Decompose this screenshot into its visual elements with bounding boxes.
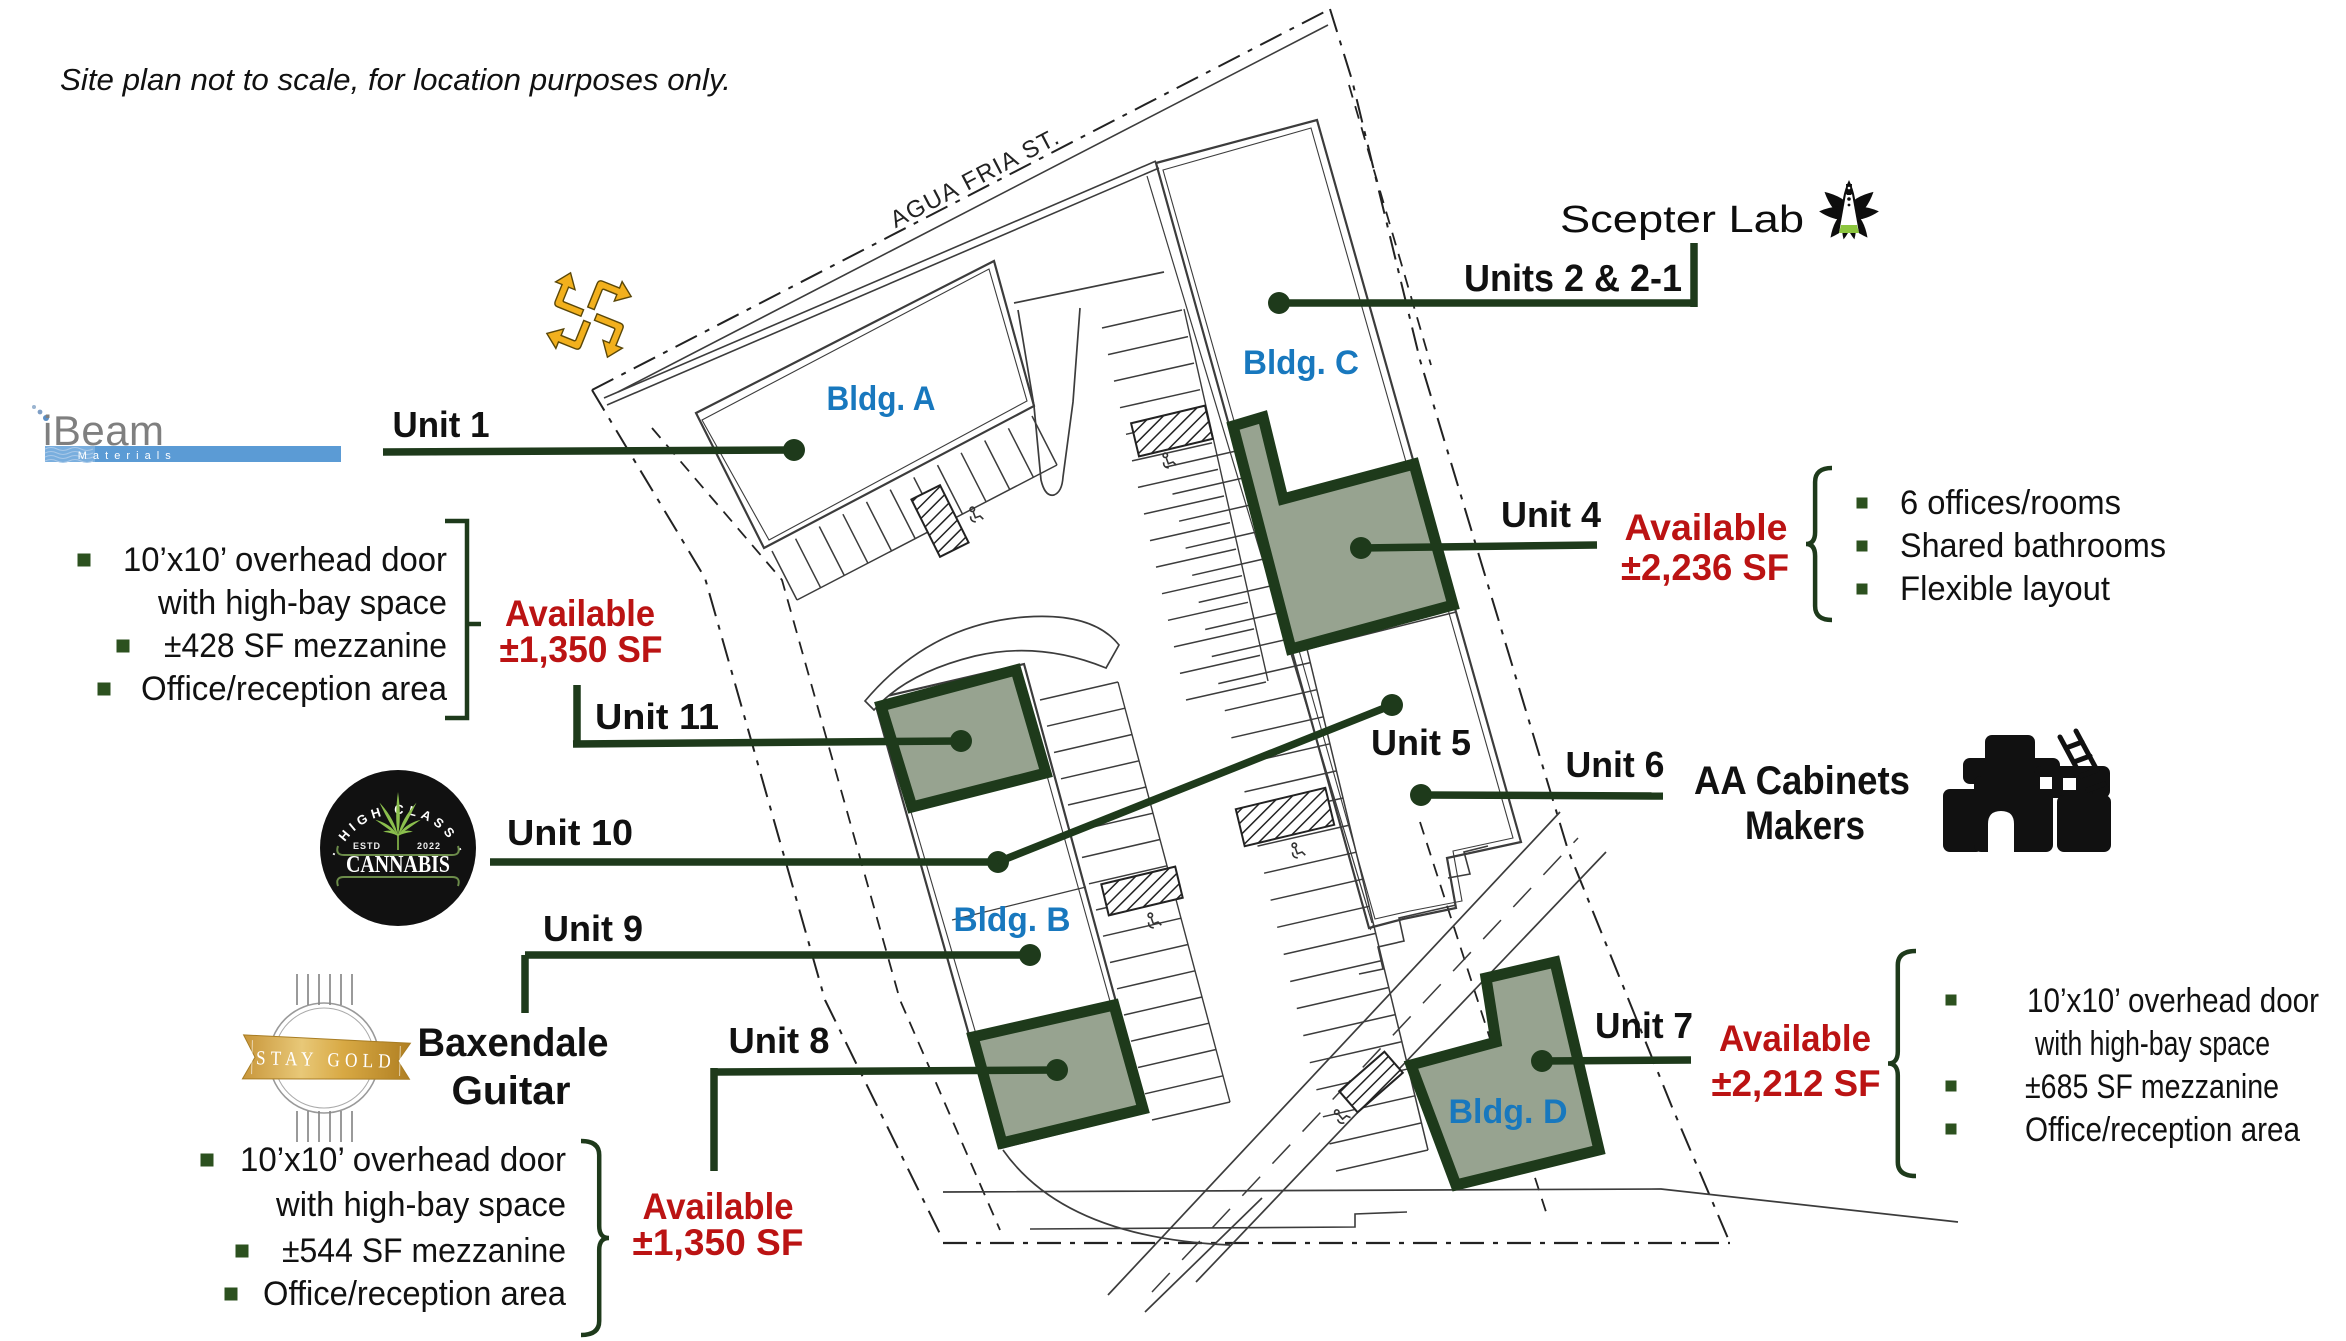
svg-text:Site plan not to scale, for lo: Site plan not to scale, for location pur… <box>60 62 731 97</box>
svg-text:±1,350 SF: ±1,350 SF <box>633 1222 804 1263</box>
svg-text:Available: Available <box>1625 507 1788 548</box>
svg-text:Available: Available <box>505 593 655 634</box>
svg-text:6 offices/rooms: 6 offices/rooms <box>1900 484 2121 522</box>
svg-text:Unit 7: Unit 7 <box>1595 1005 1693 1046</box>
svg-text:±685 SF mezzanine: ±685 SF mezzanine <box>2025 1068 2279 1106</box>
svg-text:±1,350 SF: ±1,350 SF <box>500 629 663 670</box>
svg-text:Scepter Lab: Scepter Lab <box>1560 199 1804 241</box>
svg-text:Unit 11: Unit 11 <box>595 696 719 737</box>
svg-text:Unit 8: Unit 8 <box>729 1020 830 1061</box>
svg-text:with high-bay space: with high-bay space <box>2034 1025 2270 1063</box>
svg-text:10’x10’ overhead door: 10’x10’ overhead door <box>123 541 447 579</box>
svg-text:CANNABIS: CANNABIS <box>346 852 450 878</box>
svg-text:±428 SF mezzanine: ±428 SF mezzanine <box>164 627 447 665</box>
svg-text:Unit 5: Unit 5 <box>1371 722 1471 763</box>
svg-text:±544 SF mezzanine: ±544 SF mezzanine <box>282 1232 566 1270</box>
svg-text:Guitar: Guitar <box>452 1069 571 1113</box>
svg-text:STAY GOLD: STAY GOLD <box>256 1047 397 1073</box>
svg-text:Unit 1: Unit 1 <box>393 404 490 445</box>
svg-text:Available: Available <box>1719 1018 1871 1059</box>
svg-text:Unit 4: Unit 4 <box>1501 494 1601 535</box>
svg-text:Office/reception area: Office/reception area <box>141 670 447 708</box>
svg-text:Bldg. A: Bldg. A <box>827 380 936 418</box>
svg-text:±2,236 SF: ±2,236 SF <box>1621 547 1789 588</box>
svg-text:AA Cabinets: AA Cabinets <box>1694 759 1910 803</box>
svg-text:2022: 2022 <box>417 841 441 851</box>
svg-text:Office/reception area: Office/reception area <box>263 1275 566 1313</box>
svg-text:Flexible layout: Flexible layout <box>1900 570 2111 608</box>
svg-text:10’x10’ overhead door: 10’x10’ overhead door <box>240 1141 566 1179</box>
svg-text:Bldg. D: Bldg. D <box>1449 1093 1568 1131</box>
svg-text:Units 2 & 2-1: Units 2 & 2-1 <box>1464 258 1682 300</box>
svg-text:Bldg. C: Bldg. C <box>1243 344 1359 382</box>
svg-text:Unit 9: Unit 9 <box>543 908 643 949</box>
svg-text:M a t e r i a l s: M a t e r i a l s <box>78 450 173 462</box>
svg-text:with high-bay space: with high-bay space <box>275 1186 566 1224</box>
svg-text:Bldg. B: Bldg. B <box>954 901 1071 939</box>
svg-text:Unit 10: Unit 10 <box>507 812 633 853</box>
svg-text:Office/reception area: Office/reception area <box>2025 1111 2300 1149</box>
svg-text:Makers: Makers <box>1745 804 1865 848</box>
svg-text:10’x10’ overhead door: 10’x10’ overhead door <box>2027 982 2319 1020</box>
svg-text:±2,212 SF: ±2,212 SF <box>1712 1063 1881 1104</box>
svg-text:with high-bay space: with high-bay space <box>157 584 447 622</box>
svg-text:Baxendale: Baxendale <box>418 1021 609 1065</box>
svg-text:Available: Available <box>643 1186 794 1227</box>
svg-text:Shared bathrooms: Shared bathrooms <box>1900 527 2166 565</box>
svg-text:Unit 6: Unit 6 <box>1566 744 1665 785</box>
svg-text:ESTD: ESTD <box>353 841 381 851</box>
